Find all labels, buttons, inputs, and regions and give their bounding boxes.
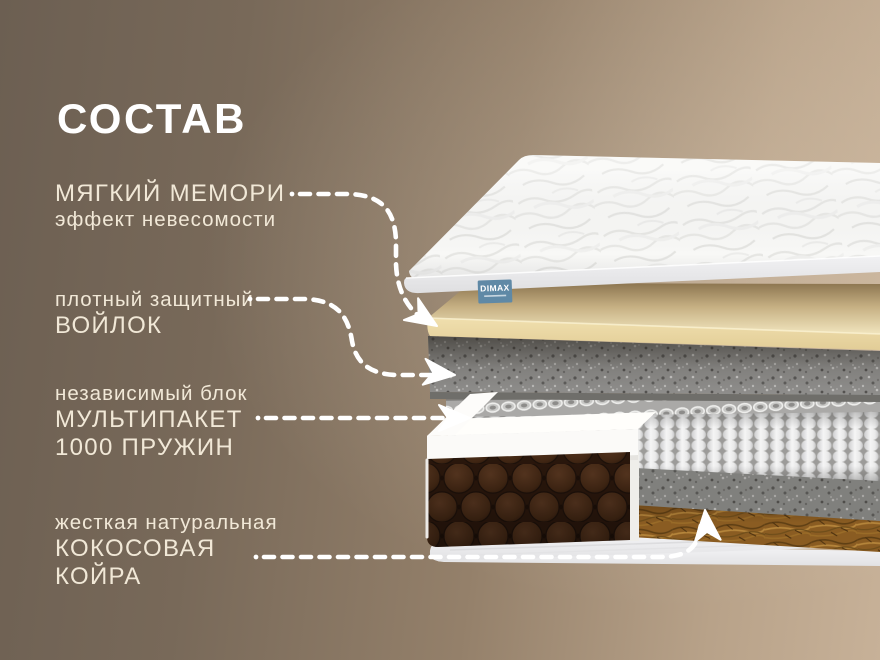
dimax-brand-tag: DIMAX (478, 279, 513, 303)
layer-top-quilt-cover (404, 155, 880, 293)
mattress-composition-infographic: СОСТАВ МЯГКИЙ МЕМОРИ эффект невесомости … (0, 0, 880, 660)
cut-edge (630, 450, 639, 541)
brand-name: DIMAX (480, 282, 510, 293)
mattress-cutaway-illustration: DIMAX (0, 0, 880, 660)
dashed-line (258, 299, 440, 375)
side-quilted-cover (427, 452, 630, 547)
